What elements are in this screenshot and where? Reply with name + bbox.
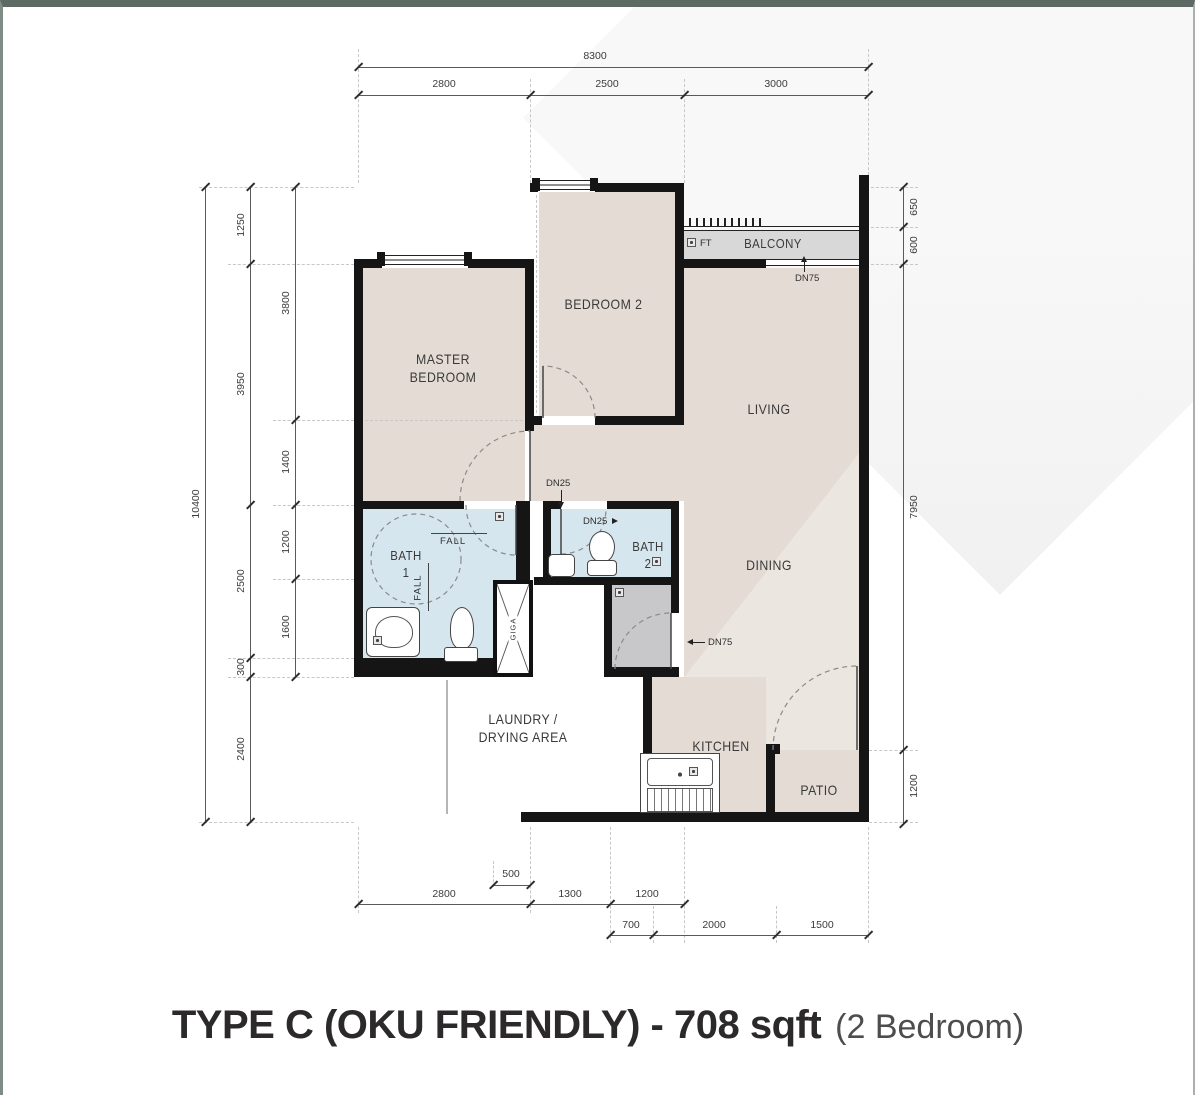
dimension-line	[358, 904, 684, 905]
dim-top-2800: 2800	[414, 78, 474, 90]
room-label-master: MASTER BEDROOM	[377, 350, 509, 386]
dimension-line	[358, 67, 868, 68]
dim-inner-1400: 1400	[280, 427, 292, 497]
plan-title: TYPE C (OKU FRIENDLY) - 708 sqft(2 Bedro…	[3, 1003, 1193, 1048]
bath1-door-arc	[466, 505, 516, 555]
dim-bottom-1200: 1200	[617, 888, 677, 900]
bath2-toilet-bowl	[589, 531, 615, 563]
room-label-line: BEDROOM	[377, 368, 509, 386]
dim-left-1250: 1250	[235, 190, 247, 260]
room-label-dining: DINING	[725, 556, 813, 574]
dim-top-total: 8300	[565, 50, 625, 62]
room-label-line: DRYING AREA	[453, 728, 594, 746]
dn25-hall-arrow	[558, 502, 564, 508]
ft-floor-trap-icon	[687, 238, 696, 247]
dim-left-2400: 2400	[235, 714, 247, 784]
grid-line	[199, 822, 354, 823]
bath1-toilet-tank	[444, 647, 478, 662]
dim-right-1200: 1200	[908, 751, 920, 821]
dim-left-total: 10400	[190, 469, 202, 539]
floor-trap-icon	[373, 636, 382, 645]
bath2-basin	[548, 554, 575, 577]
dn75-balcony-stem	[804, 262, 805, 272]
dim-bottom-1500: 1500	[792, 919, 852, 931]
dim-inner-1200: 1200	[280, 507, 292, 577]
plan-title-sub: (2 Bedroom)	[835, 1008, 1024, 1046]
master-door-arc	[460, 431, 530, 501]
dim-bottom-2800: 2800	[414, 888, 474, 900]
socket-icon	[689, 767, 698, 776]
dimension-line	[295, 187, 296, 677]
sink-drainer	[647, 788, 713, 812]
ft-label: FT	[700, 238, 712, 249]
bath1-basin	[366, 607, 420, 657]
floor-plan-page: GIGA	[0, 0, 1195, 1095]
room-label-line: 2	[619, 556, 677, 573]
dn25-hall-label: DN25	[546, 478, 570, 489]
dim-right-600: 600	[908, 210, 920, 280]
dim-bottom-1300: 1300	[540, 888, 600, 900]
bath1-toilet-bowl	[450, 607, 474, 649]
dimension-line	[610, 935, 868, 936]
dn75-balcony-label: DN75	[795, 273, 819, 284]
dim-tick	[899, 819, 908, 828]
room-label-kitchen: KITCHEN	[677, 737, 765, 755]
plan-title-main: TYPE C (OKU FRIENDLY) - 708 sqft	[172, 1003, 821, 1047]
fall-label-b: FALL	[413, 568, 424, 608]
dimension-line	[903, 187, 904, 824]
room-label-balcony: BALCONY	[729, 236, 817, 253]
dim-left-2500: 2500	[235, 546, 247, 616]
dim-inner-1600: 1600	[280, 592, 292, 662]
dimension-line	[205, 187, 206, 822]
room-label-patio: PATIO	[784, 781, 854, 799]
fall-line-b	[428, 563, 429, 611]
dn25-bath2-arrow	[612, 518, 618, 524]
patio-door-arc	[773, 666, 857, 750]
grid-line	[358, 49, 359, 183]
room-label-bath2: BATH 2	[619, 539, 677, 573]
dimension-line	[493, 885, 530, 886]
dim-left-300: 300	[235, 632, 247, 702]
dim-top-2500: 2500	[577, 78, 637, 90]
fall-label-a: FALL	[440, 536, 466, 547]
kitchen-sink	[640, 753, 720, 813]
dimension-line	[358, 95, 868, 96]
grid-line	[273, 420, 354, 421]
room-label-living: LIVING	[725, 400, 813, 418]
sink-bowl	[647, 758, 713, 786]
room-label-bedroom2: BEDROOM 2	[540, 295, 668, 313]
dim-bottom-500: 500	[481, 868, 541, 880]
grid-line	[776, 906, 777, 943]
bath2-toilet-tank	[587, 560, 617, 576]
dn75-utility-stem	[693, 642, 705, 643]
room-label-line: BATH	[619, 539, 677, 556]
floor-trap-icon	[615, 588, 624, 597]
grid-line	[199, 187, 354, 188]
grid-line	[273, 505, 354, 506]
fall-overline	[431, 533, 487, 534]
grid-line	[358, 827, 359, 913]
dim-inner-3800: 3800	[280, 268, 292, 338]
floor-trap-icon	[495, 512, 504, 521]
dim-bottom-2000: 2000	[684, 919, 744, 931]
room-label-line: MASTER	[377, 350, 509, 368]
room-label-laundry: LAUNDRY / DRYING AREA	[453, 710, 594, 746]
dim-left-3950: 3950	[235, 349, 247, 419]
dn25-bath2-label: DN25	[583, 516, 607, 527]
grid-line	[868, 827, 869, 943]
utility-door-arc	[615, 613, 671, 669]
dim-right-7950: 7950	[908, 472, 920, 542]
dim-top-3000: 3000	[746, 78, 806, 90]
dim-bottom-700: 700	[601, 919, 661, 931]
grid-line	[273, 579, 354, 580]
bedroom2-door-arc	[543, 366, 595, 418]
dn75-utility-label: DN75	[708, 637, 732, 648]
room-label-line: LAUNDRY /	[453, 710, 594, 728]
drawing-sheet: GIGA	[3, 7, 1193, 1095]
